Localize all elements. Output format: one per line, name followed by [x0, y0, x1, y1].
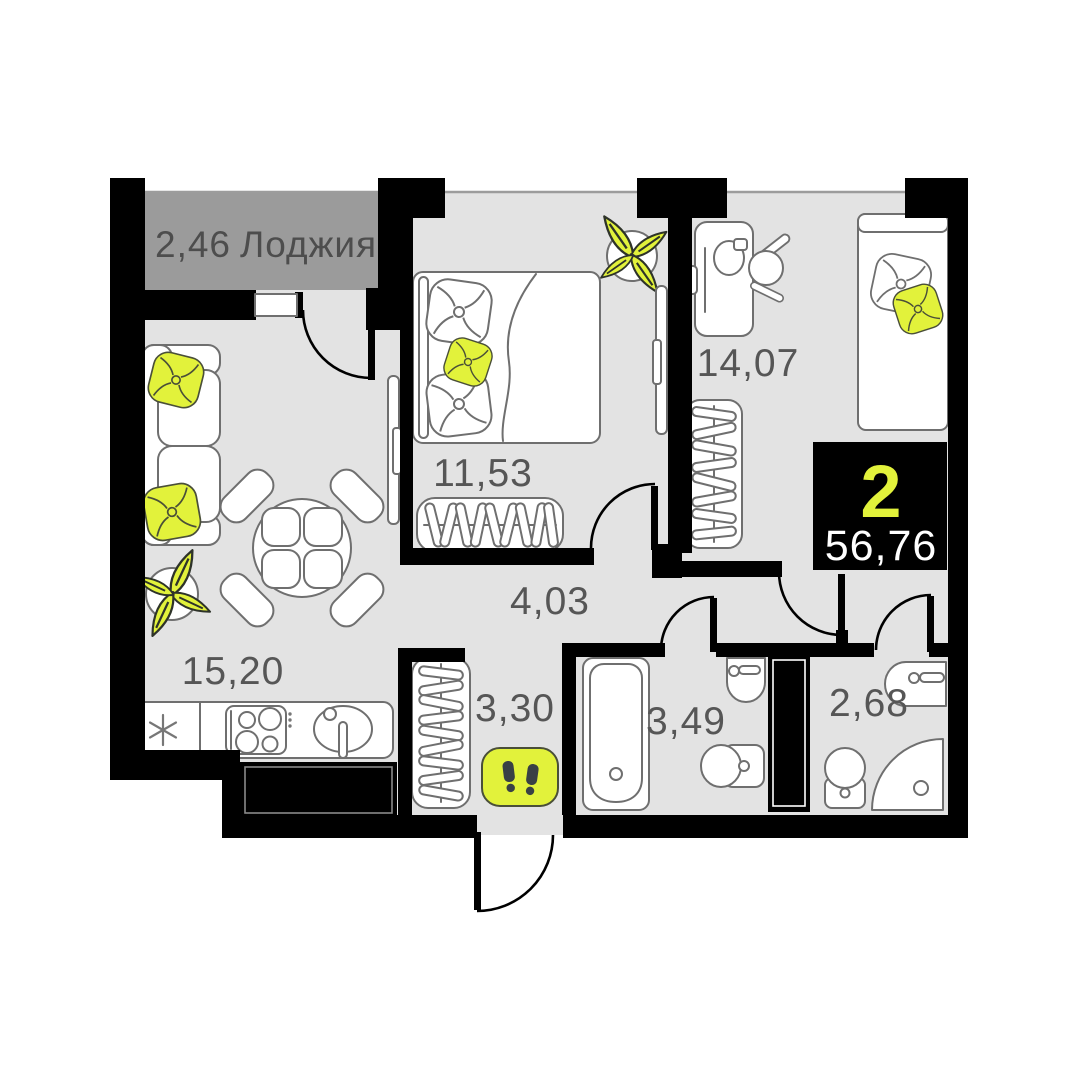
stove-icon	[226, 706, 292, 754]
label-bedroom-area: 11,53	[433, 452, 533, 495]
loggia-window	[145, 178, 378, 192]
wardrobe-icon	[686, 400, 742, 548]
label-wc-area: 2,68	[829, 682, 909, 725]
windows	[145, 178, 905, 192]
label-loggia-area: 2,46	[155, 224, 231, 265]
tv-icon	[388, 376, 401, 524]
double-bed-icon	[413, 272, 600, 443]
label-loggia-name: Лоджия	[240, 224, 377, 265]
single-bed-icon	[858, 214, 948, 430]
loggia-wall	[128, 290, 256, 320]
loggia-window-sill	[255, 294, 297, 316]
toilet-icon	[701, 745, 764, 787]
shaft	[768, 643, 810, 812]
floor-plan: 2 56,76 2,46 Лоджия 11,53 14,07 4,03 15,…	[0, 0, 1080, 1080]
hallway-wardrobe-icon	[412, 658, 470, 808]
bathtub-icon	[583, 658, 649, 810]
badge-total-area: 56,76	[825, 522, 938, 570]
footprints-icon	[482, 748, 558, 806]
floor-plan-page: 2 56,76 2,46 Лоджия 11,53 14,07 4,03 15,…	[0, 0, 1080, 1080]
desk-icon	[688, 222, 753, 336]
entrance-floor-strip	[477, 815, 563, 835]
kitchen-unit	[133, 702, 393, 758]
radiator-bench-icon	[417, 498, 563, 552]
label-living-kitchen-area: 15,20	[182, 650, 285, 693]
outside-cutout	[108, 780, 222, 842]
sofa-pillow-icon	[141, 481, 203, 543]
bedroom-window	[445, 178, 637, 192]
label-corridor-area: 4,03	[510, 580, 590, 623]
area-badge: 2 56,76	[813, 442, 947, 570]
kitchen-shaft	[240, 762, 397, 818]
bedroom2-window	[727, 178, 905, 192]
label-bathroom-area: 3,49	[646, 700, 726, 743]
entrance-door	[474, 832, 553, 911]
sofa-icon	[141, 345, 220, 545]
tv-icon	[653, 286, 667, 434]
badge-rooms-count: 2	[860, 450, 901, 533]
sink-icon	[727, 658, 765, 702]
toilet-icon	[825, 748, 865, 808]
label-hallway-area: 3,30	[475, 687, 555, 730]
label-bedroom2-area: 14,07	[697, 342, 800, 385]
